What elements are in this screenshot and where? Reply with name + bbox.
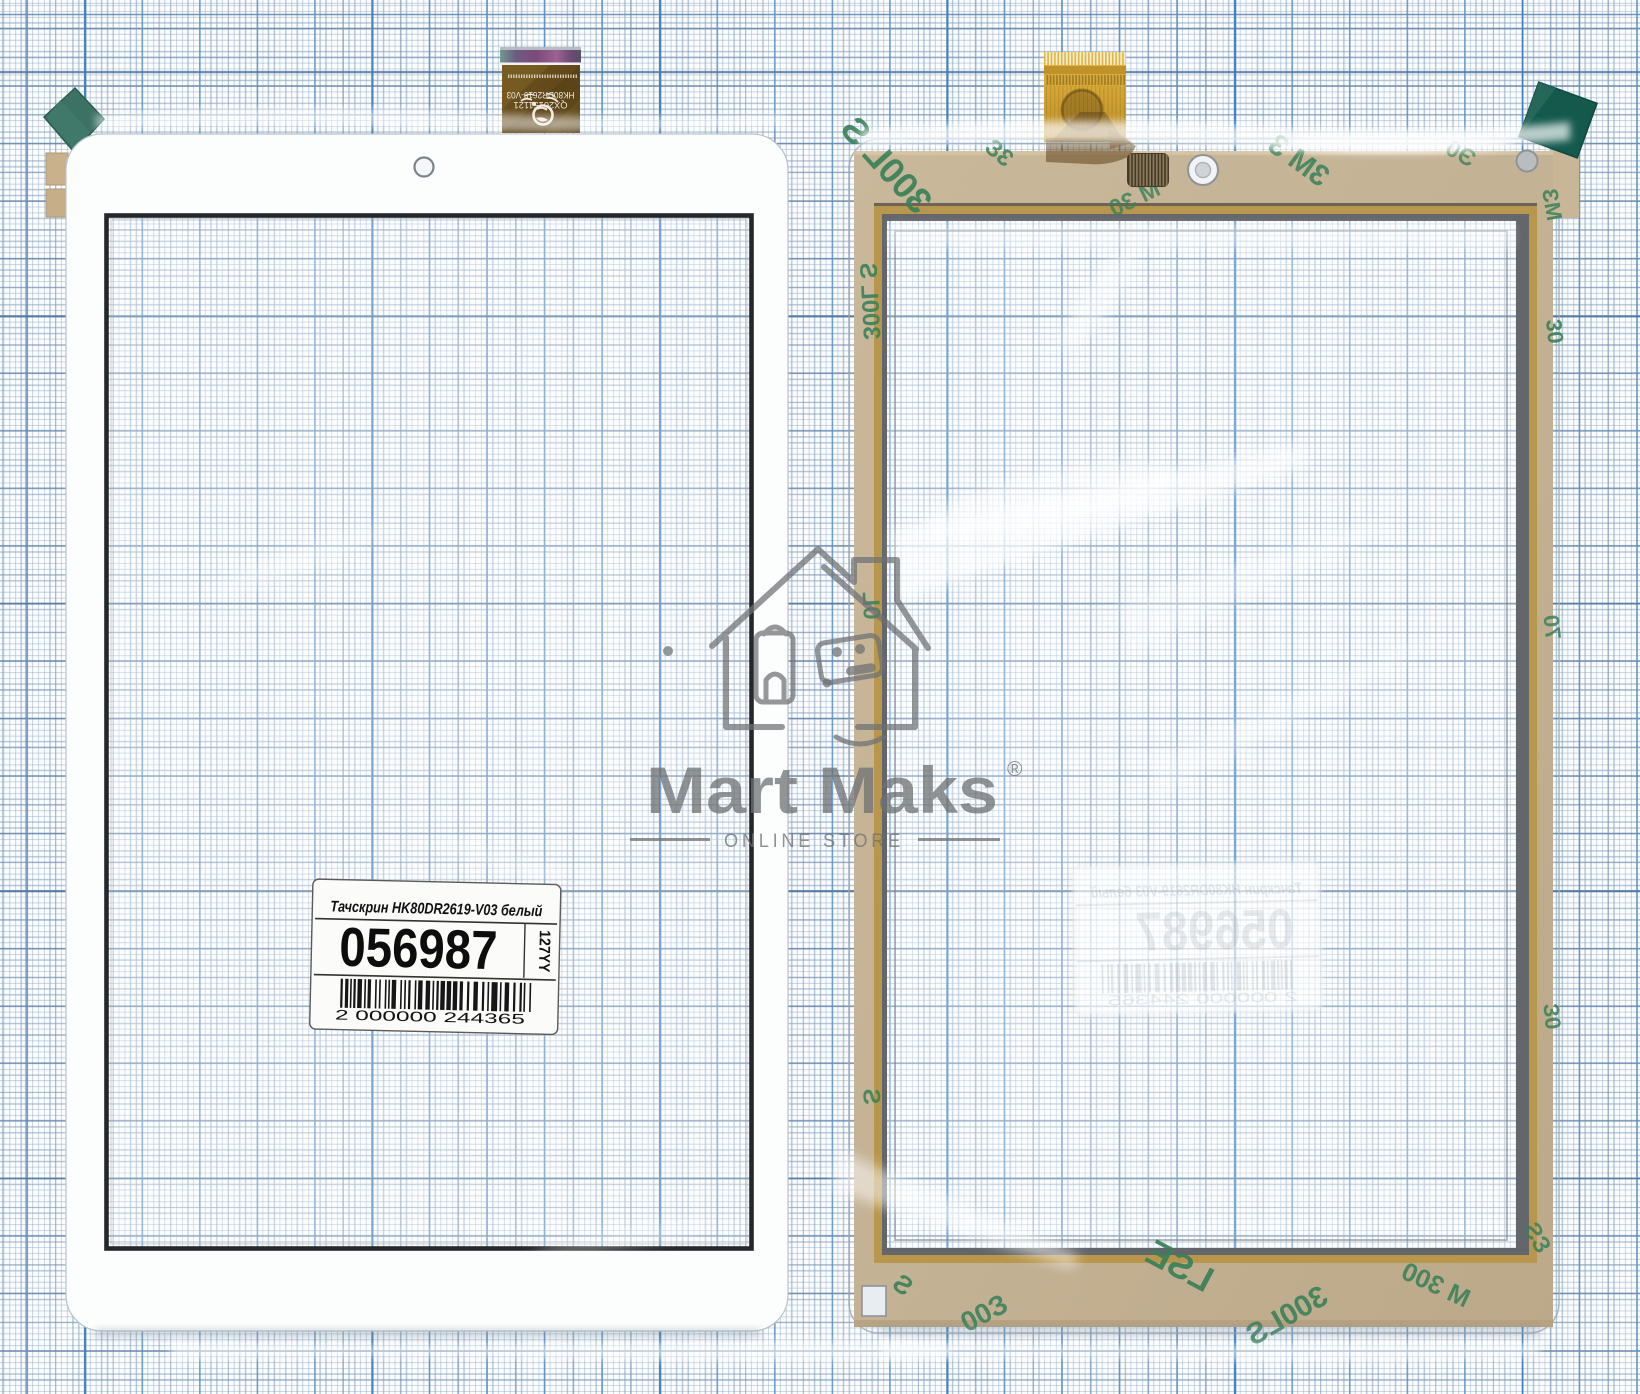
svg-text:HK80DR2619-V03: HK80DR2619-V03 — [507, 90, 575, 100]
svg-text:127YY: 127YY — [535, 930, 553, 973]
svg-text:300L S: 300L S — [854, 262, 885, 340]
svg-text:®: ® — [1007, 758, 1023, 781]
svg-text:ONLINE STORE: ONLINE STORE — [724, 830, 904, 852]
svg-text:056987: 056987 — [339, 916, 498, 982]
svg-text:0Ɛ: 0Ɛ — [1538, 1002, 1566, 1031]
svg-text:S: S — [857, 1088, 885, 1105]
svg-text:Mart Maks: Mart Maks — [646, 753, 998, 827]
svg-text:30: 30 — [1541, 318, 1568, 345]
svg-text:70: 70 — [1538, 614, 1565, 641]
svg-text:056987: 056987 — [1135, 897, 1294, 962]
